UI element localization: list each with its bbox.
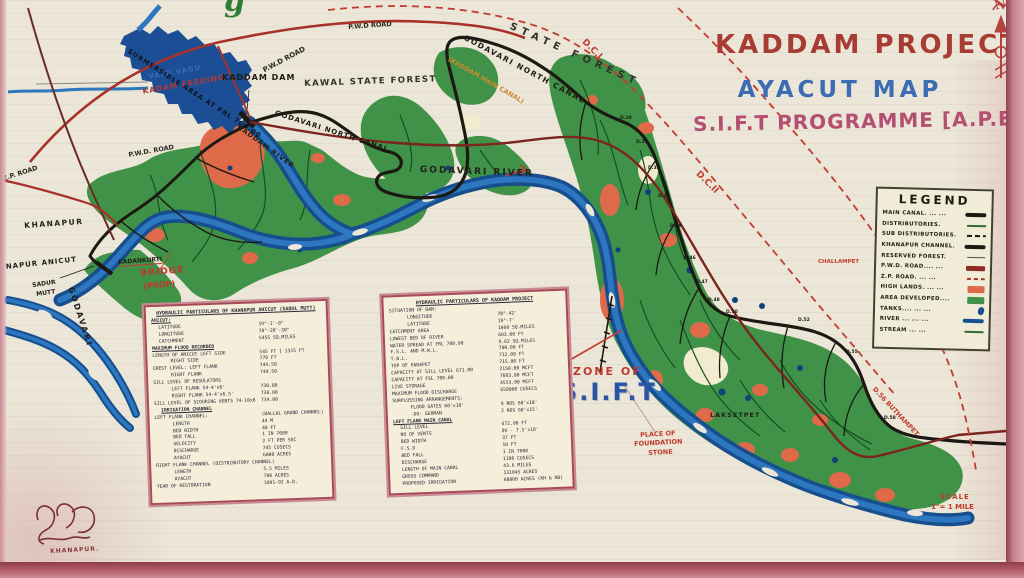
legend-title: LEGEND [878, 192, 992, 209]
tanks-swatch [977, 306, 985, 316]
distributories-swatch [967, 224, 986, 227]
photo-frame-left [0, 0, 7, 578]
distributary-number: D.46 [684, 256, 696, 261]
sub-distributories-swatch [967, 235, 986, 237]
khanapur-channel-swatch [965, 245, 986, 250]
legend-label: RESERVED FOREST. [881, 252, 946, 260]
distributary-number: D.48 [708, 298, 720, 303]
distributary-number: D.39 [670, 224, 682, 229]
legend-label: P.W.D. ROAD.... ... [881, 263, 943, 271]
distributary-number: D.52 [798, 318, 810, 323]
area-developed-swatch [967, 296, 984, 303]
distributary-number: D.55 [846, 350, 858, 355]
high-lands-swatch [967, 286, 984, 293]
page-title-line2: AYACUT MAP [730, 78, 950, 102]
legend-label: AREA DEVELOPED.... [880, 295, 950, 303]
khanapur-anicut-table: HYDRAULIC PARTICULARS OF KHANAPUR ANICUT… [144, 299, 335, 505]
cell-value: 68000 ACRES (KH & RB) [504, 475, 568, 484]
zp-road-swatch [967, 278, 985, 280]
label-challampet: CHALLAMPET [818, 260, 859, 266]
watermark-g: g [224, 0, 245, 18]
photo-frame-bottom [0, 562, 1024, 578]
distributary-number: D.33 [648, 166, 660, 171]
legend-label: Z.P. ROAD. ... ... [881, 274, 937, 281]
cell-value: 1891-92 A.D. [264, 479, 327, 488]
cell-label: PROPOSED IRRIGATION [395, 480, 456, 489]
river-swatch [963, 319, 984, 324]
label-laksetpet: LAKSETPET [710, 412, 760, 419]
legend-label: DISTRIBUTORIES. [882, 221, 941, 228]
stream-swatch [964, 330, 983, 333]
distributary-number: D.58 [884, 416, 896, 421]
kaddam-reservoir [8, 6, 254, 134]
distributary-number: D.50 [726, 310, 738, 315]
legend-label: KHANAPUR CHANNEL. [882, 242, 956, 250]
reserved-forest-swatch [967, 257, 985, 259]
distributary-number: D.28 [620, 116, 632, 121]
label-sift-zone: S.I.F.T [560, 380, 657, 405]
distributary-number: D.36 [658, 194, 670, 199]
distributary-number: D.29 [636, 140, 648, 145]
cell-label: YEAR OF RESTORATION [157, 483, 211, 492]
page-title-line3: S.I.F.T PROGRAMME [A.P.E.R.P] [693, 109, 998, 135]
signature-monogram [37, 504, 94, 544]
legend-label: RIVER ... ... ... [880, 316, 929, 323]
scale-value: 1"= 1 MILE [931, 504, 974, 511]
legend-label: STREAM ... ... [879, 327, 926, 334]
legend-label: SUB DISTRIBUTORIES. [882, 231, 957, 239]
page-title-line1: KADDAM PROJECT [715, 32, 985, 59]
pwd-road-swatch [966, 266, 985, 271]
legend-label: MAIN CANAL. ... ... [882, 210, 946, 218]
photo-frame-right [1006, 0, 1024, 578]
legend-item-stream: STREAM ... ... [874, 324, 988, 337]
label-foundation-3: STONE [648, 449, 673, 457]
legend-box: LEGEND MAIN CANAL. ... ... DISTRIBUTORIE… [872, 187, 994, 352]
legend-label: HIGH LANDS. ... ... [880, 284, 944, 292]
scale-label: SCALE [940, 494, 970, 501]
main-canal-swatch [965, 213, 986, 218]
label-kaddam-dam: KADDAM DAM [222, 74, 295, 82]
distributary-number: D.47 [696, 280, 708, 285]
label-zone-of: ZONE OF [573, 366, 642, 378]
kaddam-project-table: HYDRAULIC PARTICULARS OF KADDAM PROJECT … [381, 289, 575, 496]
legend-label: TANKS.... ... ... [880, 305, 931, 312]
